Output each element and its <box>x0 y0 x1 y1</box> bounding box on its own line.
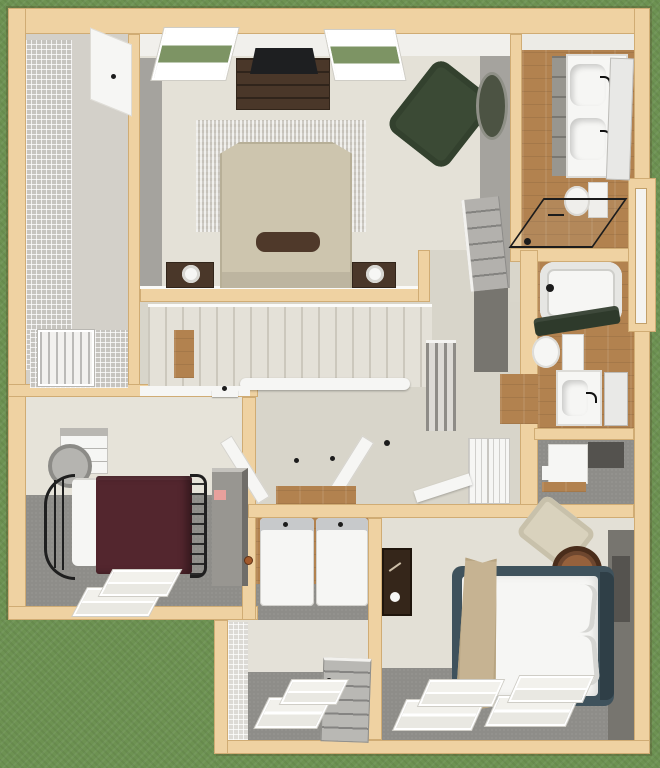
hall-toilet-bowl <box>532 336 560 368</box>
bolster-pillow <box>256 232 320 252</box>
stair-handrail <box>240 378 410 390</box>
shelf-bracket <box>222 386 227 391</box>
leaning-oval-mirror <box>476 72 508 140</box>
bifold-hinge-right <box>330 456 335 461</box>
master-window-left <box>152 28 239 80</box>
hall-bath-threshold <box>500 374 538 424</box>
grass-cutout <box>0 620 216 768</box>
rear-window2-sash2 <box>508 676 594 702</box>
hall-sink <box>562 380 588 416</box>
bonus-tile-wall <box>228 622 248 740</box>
armoire <box>212 468 248 586</box>
bonus-window-sash2 <box>280 680 348 704</box>
maroon-duvet <box>96 476 192 574</box>
wall-ledge-return <box>418 250 430 302</box>
iron-headboard <box>44 474 75 580</box>
bedroom-rear-east-window <box>612 556 630 622</box>
dryer-knob <box>338 522 343 527</box>
shower-drain <box>524 238 531 245</box>
hall-faucet <box>586 392 597 403</box>
bifold-hinge-left <box>294 458 299 463</box>
front-door-knob <box>244 556 253 565</box>
rear-headboard <box>600 572 614 700</box>
clock-pendulum <box>390 592 400 602</box>
lamp-left <box>182 265 200 283</box>
wall-center-south <box>248 504 634 518</box>
tiny-wall-shelf <box>212 390 238 397</box>
bath-west-wall-face <box>474 288 508 372</box>
master-bed <box>220 142 352 288</box>
iron-headboard-bar1 <box>54 480 56 568</box>
wire-shelving-west <box>26 40 72 370</box>
rear-pillow-top <box>560 582 599 633</box>
laundry-threshold <box>276 486 356 504</box>
lamp-right <box>366 265 384 283</box>
hall-leaning-mirror <box>604 372 628 426</box>
iron-footboard <box>190 474 207 578</box>
door-stop <box>384 440 390 446</box>
washer-knob <box>283 522 288 527</box>
linen-shelf-lower <box>542 466 576 480</box>
wall-master-ledge <box>140 288 430 302</box>
hall-toilet-tank <box>562 334 584 372</box>
linen-wood-base <box>542 482 586 492</box>
stair-balustrade <box>426 340 456 431</box>
armoire-pink-item <box>214 490 226 500</box>
dryer <box>316 518 368 606</box>
wall-bedroom-rear-west <box>368 518 382 740</box>
stair-wood-edge <box>174 330 194 378</box>
rear-window1-sash2 <box>418 680 504 706</box>
grandfather-clock <box>382 548 412 616</box>
master-west-wall-face <box>140 58 162 288</box>
floor-plan <box>0 0 660 768</box>
washer <box>260 518 314 606</box>
wall-bottom <box>216 740 650 754</box>
master-window-right <box>325 30 406 80</box>
bath-north-wall-face <box>522 34 634 50</box>
paneled-closet-doors <box>468 438 510 504</box>
linen-dark-panel <box>588 442 624 468</box>
tub-faucet <box>546 284 554 292</box>
wall-bonus-west <box>214 620 228 754</box>
wall-right <box>634 8 650 754</box>
shower-bar <box>548 214 564 216</box>
bumpout-slot <box>635 188 647 324</box>
iron-headboard-bar2 <box>62 478 64 570</box>
louvered-shutter <box>38 330 94 386</box>
closet-door-knob <box>111 74 116 79</box>
wall-left <box>8 8 26 620</box>
master-bed-headboard <box>222 272 350 288</box>
wall-linen-north <box>534 428 634 440</box>
tv <box>250 48 318 74</box>
bath-leaning-mirror <box>606 58 634 181</box>
front-window-sash2 <box>99 570 181 596</box>
wall-master-bath-west <box>510 34 522 250</box>
